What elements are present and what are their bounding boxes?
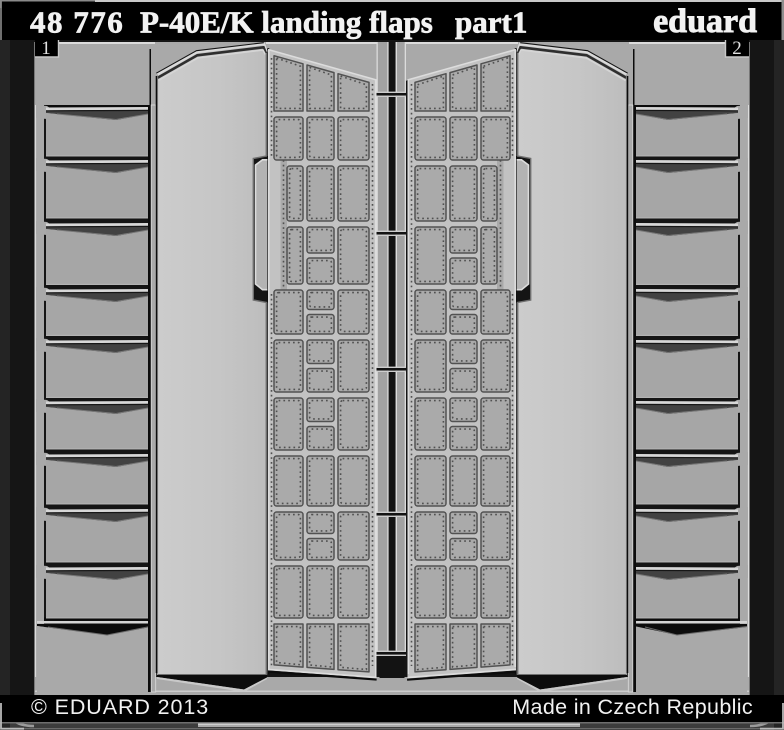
svg-text:1: 1 bbox=[41, 38, 51, 59]
svg-text:Made in Czech Republic: Made in Czech Republic bbox=[512, 695, 753, 719]
svg-text:© EDUARD 2013: © EDUARD 2013 bbox=[31, 695, 209, 719]
svg-text:P-40E/K landing flaps: P-40E/K landing flaps bbox=[140, 5, 433, 40]
svg-text:2: 2 bbox=[732, 38, 742, 59]
svg-text:eduard: eduard bbox=[653, 3, 757, 40]
svg-text:48 776: 48 776 bbox=[30, 5, 124, 40]
svg-text:part1: part1 bbox=[455, 5, 527, 40]
